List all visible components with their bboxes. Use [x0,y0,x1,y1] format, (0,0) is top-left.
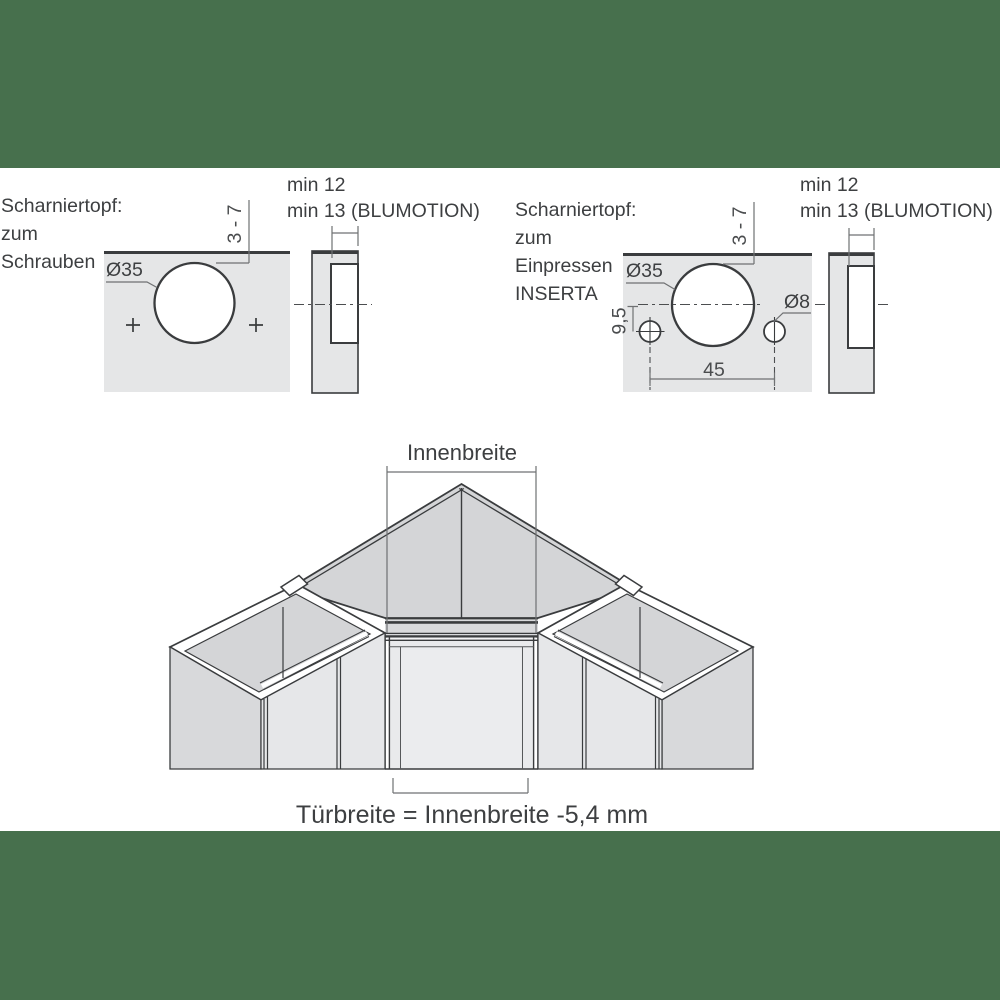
min-depth-label-2: min 13 (BLUMOTION) [287,200,480,222]
door-width-formula: Türbreite = Innenbreite -5,4 mm [296,801,648,829]
min-depth-label-right-1: min 12 [800,174,859,196]
left-diagram-title-line2: zum [1,223,38,245]
cup-diameter-label: Ø35 [106,259,143,281]
hole-spacing-label: 45 [703,359,725,381]
right-diagram-title-line4: INSERTA [515,283,598,305]
cup-bore-section [331,264,358,343]
right-diagram-title-line3: Einpressen [515,255,613,277]
min-depth-label-right-2: min 13 (BLUMOTION) [800,200,993,222]
left-diagram-title-line1: Scharniertopf: [1,195,122,217]
edge-distance-label: 3 - 7 [224,204,246,243]
hinge-cup-screw-on-diagram: Scharniertopf: zum Schrauben Ø35 3 - 7 m… [1,174,480,393]
hinge-cup-inserta-diagram: Scharniertopf: zum Einpressen INSERTA Ø3… [515,174,993,393]
cup-hole-35mm [155,263,235,343]
page: Scharniertopf: zum Schrauben Ø35 3 - 7 m… [0,0,1000,1000]
corner-cabinet-drawing: Innenbreite Türbreite = Innenbreite -5,4… [170,440,753,829]
edge-distance-label-right: 3 - 7 [729,206,751,245]
technical-drawing: Scharniertopf: zum Schrauben Ø35 3 - 7 m… [0,0,1000,1000]
cup-bore-section-right [848,266,874,348]
left-diagram-title-line3: Schrauben [1,251,95,273]
inner-width-label: Innenbreite [407,440,517,465]
dowel-diameter-label: Ø8 [784,291,810,313]
right-diagram-title-line2: zum [515,227,552,249]
vertical-offset-label: 9,5 [609,307,631,334]
right-diagram-title-line1: Scharniertopf: [515,199,636,221]
door-width-dim-lines [393,778,528,793]
center-door-inner-face [401,647,521,769]
min-depth-label-1: min 12 [287,174,346,196]
cup-diameter-label-right: Ø35 [626,260,663,282]
